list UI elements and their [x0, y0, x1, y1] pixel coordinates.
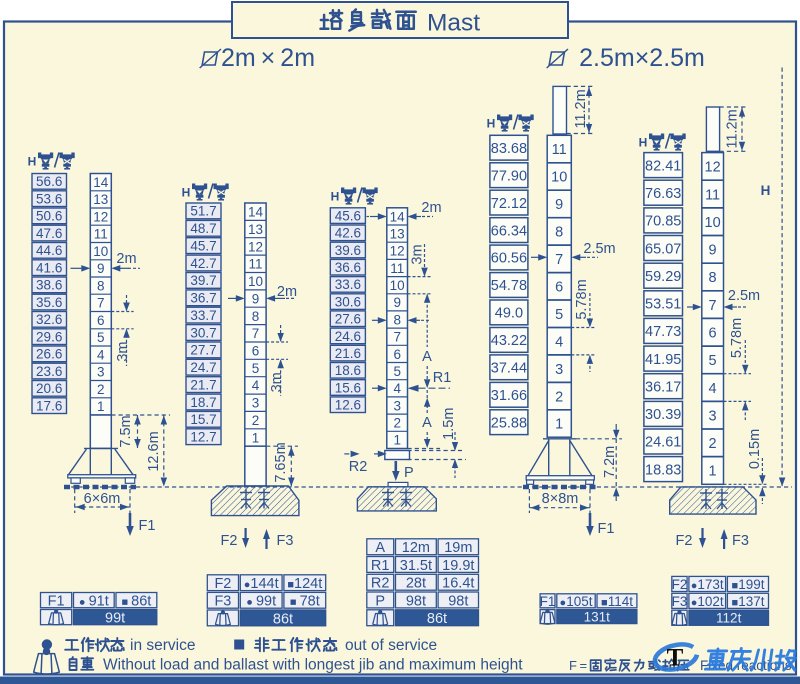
svg-text:36.7: 36.7: [190, 291, 216, 306]
svg-text:H: H: [487, 117, 496, 131]
svg-text:53.6: 53.6: [36, 191, 62, 206]
svg-text:3: 3: [709, 408, 717, 424]
svg-text:2m × 2m: 2m × 2m: [221, 44, 315, 72]
svg-text:6: 6: [97, 313, 105, 328]
svg-text:17.6: 17.6: [36, 398, 62, 413]
svg-text:2.5m×2.5m: 2.5m×2.5m: [579, 44, 705, 72]
svg-text:4: 4: [709, 381, 717, 397]
svg-text:H: H: [639, 136, 648, 150]
svg-text:●105t: ●105t: [560, 594, 593, 609]
svg-text:F1: F1: [139, 518, 156, 534]
svg-text:9: 9: [97, 261, 105, 276]
svg-text:43.22: 43.22: [491, 333, 527, 349]
svg-text:F1: F1: [540, 594, 556, 609]
svg-text:10: 10: [705, 215, 721, 231]
svg-text:8: 8: [709, 270, 717, 286]
svg-text:12: 12: [248, 239, 263, 254]
svg-text:31.66: 31.66: [491, 388, 527, 404]
svg-text:F =: F =: [569, 658, 587, 673]
svg-text:41.6: 41.6: [36, 260, 62, 275]
svg-text:39.6: 39.6: [335, 243, 361, 258]
svg-text:10: 10: [248, 274, 263, 289]
svg-text:14: 14: [390, 209, 406, 224]
svg-text:7: 7: [555, 252, 563, 268]
svg-text:8×8m: 8×8m: [542, 491, 579, 507]
svg-text:1: 1: [709, 464, 717, 480]
svg-text:12.7: 12.7: [190, 430, 216, 445]
svg-text:F3: F3: [214, 594, 231, 610]
svg-text:54.78: 54.78: [491, 278, 527, 294]
svg-text:21.7: 21.7: [190, 377, 216, 392]
svg-text:6: 6: [555, 280, 563, 296]
svg-text:11: 11: [552, 142, 567, 158]
svg-text:56.6: 56.6: [36, 174, 62, 189]
svg-text:60.56: 60.56: [491, 251, 527, 267]
svg-text:30.7: 30.7: [190, 325, 216, 340]
svg-text:27.6: 27.6: [335, 312, 361, 327]
svg-text:0.15m: 0.15m: [747, 429, 763, 469]
svg-text:12.6: 12.6: [335, 398, 361, 413]
svg-text:8: 8: [97, 279, 105, 294]
svg-text:45.7: 45.7: [190, 239, 216, 254]
svg-text:5: 5: [709, 353, 717, 369]
svg-text:131t: 131t: [584, 610, 611, 625]
svg-text:7: 7: [97, 296, 105, 311]
svg-text:11: 11: [248, 257, 262, 272]
svg-text:3: 3: [393, 398, 401, 413]
svg-text:7: 7: [252, 326, 260, 341]
svg-text:35.6: 35.6: [36, 295, 62, 310]
svg-text:26.6: 26.6: [36, 347, 62, 362]
svg-text:5: 5: [393, 364, 401, 379]
svg-text:66.34: 66.34: [491, 223, 527, 239]
svg-text:44.6: 44.6: [36, 243, 62, 258]
svg-text:1: 1: [252, 430, 260, 445]
svg-text:■ 86t: ■ 86t: [121, 594, 151, 610]
svg-text:H: H: [761, 183, 771, 198]
svg-text:R1: R1: [433, 370, 452, 386]
svg-text:F2: F2: [214, 576, 231, 592]
svg-text:99t: 99t: [105, 611, 125, 627]
svg-text:3: 3: [252, 396, 260, 411]
svg-text:13: 13: [248, 222, 263, 237]
svg-text:7: 7: [709, 298, 717, 314]
svg-text:11: 11: [390, 261, 404, 276]
svg-text:48.7: 48.7: [190, 221, 216, 236]
svg-text:98t: 98t: [406, 593, 426, 609]
svg-text:23.6: 23.6: [36, 364, 62, 379]
svg-text:49.0: 49.0: [495, 306, 523, 322]
svg-text:2.5m: 2.5m: [583, 241, 615, 257]
svg-text:11: 11: [705, 187, 720, 203]
svg-text:F1: F1: [598, 521, 615, 537]
svg-text:24.7: 24.7: [190, 360, 216, 375]
svg-text:H: H: [182, 186, 191, 200]
svg-text:13: 13: [390, 226, 405, 241]
svg-text:A: A: [422, 415, 432, 431]
svg-text:● 91t: ● 91t: [79, 594, 109, 610]
svg-text:30.39: 30.39: [645, 407, 681, 423]
svg-text:19.9t: 19.9t: [442, 558, 474, 574]
svg-text:12: 12: [93, 210, 108, 225]
svg-text:11: 11: [94, 227, 108, 242]
svg-text:18.83: 18.83: [645, 462, 681, 478]
svg-text:R2: R2: [371, 576, 390, 592]
svg-text:F2: F2: [676, 533, 693, 549]
svg-text:8: 8: [252, 309, 260, 324]
svg-text:36.17: 36.17: [645, 380, 681, 396]
svg-text:5: 5: [252, 361, 260, 376]
svg-text:4: 4: [252, 378, 260, 393]
svg-text:R1: R1: [371, 558, 390, 574]
svg-text:11.2m: 11.2m: [725, 109, 741, 148]
svg-text:F3: F3: [672, 594, 688, 609]
svg-text:18.7: 18.7: [190, 395, 216, 410]
svg-text:1: 1: [97, 399, 105, 414]
svg-text:14: 14: [93, 175, 109, 190]
svg-text:42.7: 42.7: [190, 256, 216, 271]
svg-text:2m: 2m: [421, 200, 441, 216]
svg-text:5: 5: [555, 307, 563, 323]
svg-text:77.90: 77.90: [491, 168, 527, 184]
svg-text:36.6: 36.6: [335, 260, 361, 275]
svg-text:15.7: 15.7: [190, 412, 216, 427]
svg-text:31.5t: 31.5t: [400, 558, 432, 574]
svg-text:2m: 2m: [116, 251, 136, 267]
svg-text:3: 3: [555, 362, 563, 378]
svg-text:7: 7: [393, 330, 401, 345]
svg-text:20.6: 20.6: [36, 381, 62, 396]
svg-text:12: 12: [390, 244, 405, 259]
svg-text:2: 2: [252, 413, 260, 428]
svg-text:in service: in service: [130, 637, 195, 654]
svg-text:51.7: 51.7: [190, 204, 216, 219]
svg-text:2: 2: [709, 436, 717, 452]
svg-text:2: 2: [555, 389, 563, 405]
svg-text:A: A: [422, 349, 432, 365]
svg-text:2m: 2m: [277, 284, 297, 300]
svg-text:15.6: 15.6: [335, 380, 361, 395]
svg-text:■137t: ■137t: [732, 594, 765, 609]
svg-text:9: 9: [393, 295, 401, 310]
svg-text:■114t: ■114t: [601, 594, 633, 609]
svg-text:3: 3: [97, 365, 105, 380]
svg-text:12: 12: [705, 160, 721, 176]
svg-text:P: P: [404, 465, 414, 481]
svg-text:F3: F3: [277, 533, 294, 549]
svg-text:2: 2: [97, 382, 105, 397]
svg-text:●173t: ●173t: [691, 577, 724, 592]
svg-text:72.12: 72.12: [491, 196, 527, 212]
svg-text:6: 6: [709, 326, 717, 342]
svg-text:11.2m: 11.2m: [573, 89, 589, 128]
svg-text:12.6m: 12.6m: [146, 431, 162, 471]
svg-text:16.4t: 16.4t: [442, 576, 474, 592]
svg-text:R2: R2: [349, 459, 368, 475]
svg-text:37.44: 37.44: [491, 361, 527, 377]
svg-text:4: 4: [393, 381, 401, 396]
svg-text:T: T: [667, 645, 684, 672]
svg-text:7.2m: 7.2m: [602, 446, 618, 478]
svg-text:6: 6: [252, 344, 260, 359]
svg-text:12m: 12m: [402, 540, 430, 556]
svg-text:3m: 3m: [269, 372, 285, 392]
svg-text:6: 6: [393, 347, 401, 362]
svg-text:5.78m: 5.78m: [574, 279, 590, 319]
svg-text:Without load and ballast with: Without load and ballast with longest ji…: [103, 657, 523, 674]
svg-text:10: 10: [93, 244, 108, 259]
svg-text:82.41: 82.41: [645, 158, 681, 174]
svg-text:19m: 19m: [444, 540, 472, 556]
svg-text:59.29: 59.29: [645, 269, 681, 285]
svg-text:41.95: 41.95: [645, 352, 681, 368]
svg-text:5: 5: [97, 330, 105, 345]
svg-text:1: 1: [393, 433, 401, 448]
svg-text:8: 8: [393, 312, 401, 327]
svg-text:28t: 28t: [406, 576, 426, 592]
svg-text:24.61: 24.61: [645, 435, 681, 451]
svg-text:65.07: 65.07: [645, 241, 681, 257]
svg-text:9: 9: [555, 197, 563, 213]
svg-text:H: H: [28, 155, 37, 169]
svg-text:10: 10: [390, 278, 405, 293]
svg-text:33.7: 33.7: [190, 308, 216, 323]
svg-text:29.6: 29.6: [36, 329, 62, 344]
svg-text:H: H: [331, 190, 340, 204]
svg-text:A: A: [375, 540, 385, 556]
svg-text:76.63: 76.63: [645, 186, 681, 202]
svg-text:●144t: ●144t: [244, 576, 279, 592]
svg-text:25.88: 25.88: [491, 415, 527, 431]
svg-text:86t: 86t: [427, 611, 447, 627]
svg-text:32.6: 32.6: [36, 312, 62, 327]
svg-text:● 99t: ● 99t: [246, 594, 276, 610]
svg-text:18.6: 18.6: [335, 363, 361, 378]
svg-text:47.6: 47.6: [36, 226, 62, 241]
svg-text:7.5m: 7.5m: [118, 415, 134, 447]
svg-text:21.6: 21.6: [335, 346, 361, 361]
svg-text:112t: 112t: [716, 611, 742, 626]
svg-text:33.6: 33.6: [335, 277, 361, 292]
svg-text:Mast: Mast: [427, 10, 480, 37]
svg-text:45.6: 45.6: [335, 209, 361, 224]
svg-text:38.6: 38.6: [36, 278, 62, 293]
svg-text:F1: F1: [48, 594, 65, 610]
svg-text:14: 14: [248, 205, 264, 220]
svg-text:10: 10: [551, 170, 567, 186]
svg-text:3m: 3m: [115, 342, 131, 362]
svg-text:3m: 3m: [410, 244, 426, 264]
svg-text:47.73: 47.73: [645, 324, 681, 340]
svg-text:27.7: 27.7: [190, 343, 216, 358]
svg-text:F2: F2: [221, 533, 238, 549]
svg-text:83.68: 83.68: [491, 141, 527, 157]
svg-text:9: 9: [252, 291, 260, 306]
svg-text:●102t: ●102t: [691, 594, 724, 609]
svg-text:1: 1: [555, 417, 563, 433]
svg-text:■124t: ■124t: [287, 576, 322, 592]
svg-text:2.5m: 2.5m: [728, 288, 760, 304]
svg-text:98t: 98t: [448, 593, 468, 609]
svg-text:13: 13: [93, 192, 108, 207]
svg-text:F3: F3: [732, 533, 749, 549]
svg-text:24.6: 24.6: [335, 329, 361, 344]
svg-text:9: 9: [709, 243, 717, 259]
svg-text:■199t: ■199t: [732, 577, 765, 592]
svg-text:F2: F2: [672, 577, 688, 592]
svg-text:4: 4: [555, 334, 563, 350]
svg-text:6×6m: 6×6m: [84, 491, 121, 507]
svg-text:50.6: 50.6: [36, 209, 62, 224]
svg-text:7.65m: 7.65m: [273, 442, 289, 482]
svg-text:86t: 86t: [273, 611, 293, 627]
svg-text:2: 2: [393, 416, 401, 431]
svg-text:4: 4: [97, 348, 105, 363]
svg-text:39.7: 39.7: [190, 273, 216, 288]
svg-text:■ 78t: ■ 78t: [290, 594, 320, 610]
svg-text:53.51: 53.51: [645, 297, 681, 313]
svg-text:P: P: [375, 593, 385, 609]
svg-text:out of service: out of service: [345, 637, 437, 654]
svg-text:5.78m: 5.78m: [729, 318, 745, 358]
svg-text:70.85: 70.85: [645, 214, 681, 230]
svg-text:42.6: 42.6: [335, 226, 361, 241]
svg-text:1.5m: 1.5m: [441, 408, 457, 440]
svg-text:8: 8: [555, 225, 563, 241]
svg-text:30.6: 30.6: [335, 294, 361, 309]
